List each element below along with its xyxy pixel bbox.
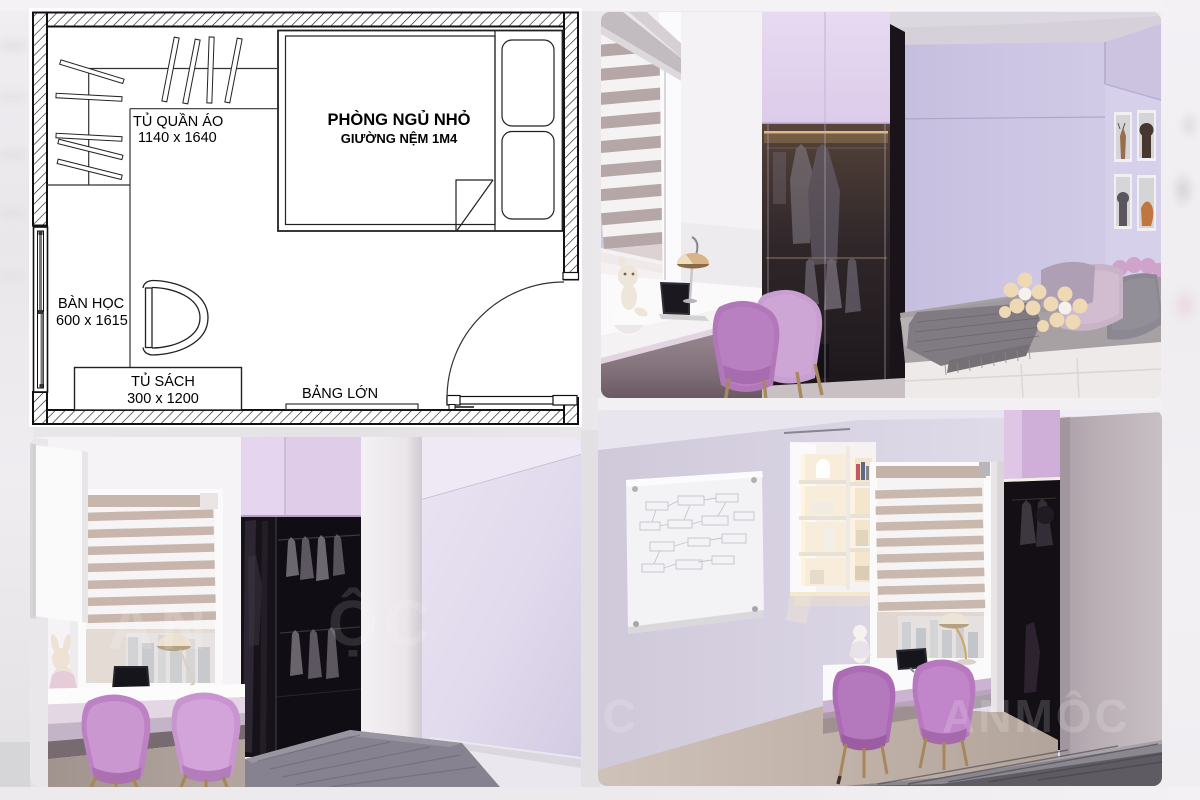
- svg-text:1140 x 1640: 1140 x 1640: [138, 130, 217, 146]
- svg-text:GIƯỜNG NỆM 1M4: GIƯỜNG NỆM 1M4: [341, 131, 458, 146]
- svg-text:ỘC: ỘC: [328, 586, 436, 659]
- svg-text:TỦ QUẦN ÁO: TỦ QUẦN ÁO: [133, 112, 223, 130]
- svg-text:BÀN HỌC: BÀN HỌC: [58, 295, 124, 312]
- svg-text:300 x 1200: 300 x 1200: [127, 391, 199, 407]
- svg-text:600 x 1615: 600 x 1615: [56, 313, 128, 329]
- svg-text:TỦ SÁCH: TỦ SÁCH: [131, 372, 195, 390]
- svg-text:ỘC: ỘC: [598, 690, 639, 742]
- svg-text:ANMÔC: ANMÔC: [942, 690, 1131, 742]
- svg-text:BẢNG LỚN: BẢNG LỚN: [302, 385, 378, 402]
- svg-text:AN: AN: [108, 591, 212, 663]
- svg-text:PHÒNG NGỦ NHỎ: PHÒNG NGỦ NHỎ: [327, 110, 470, 129]
